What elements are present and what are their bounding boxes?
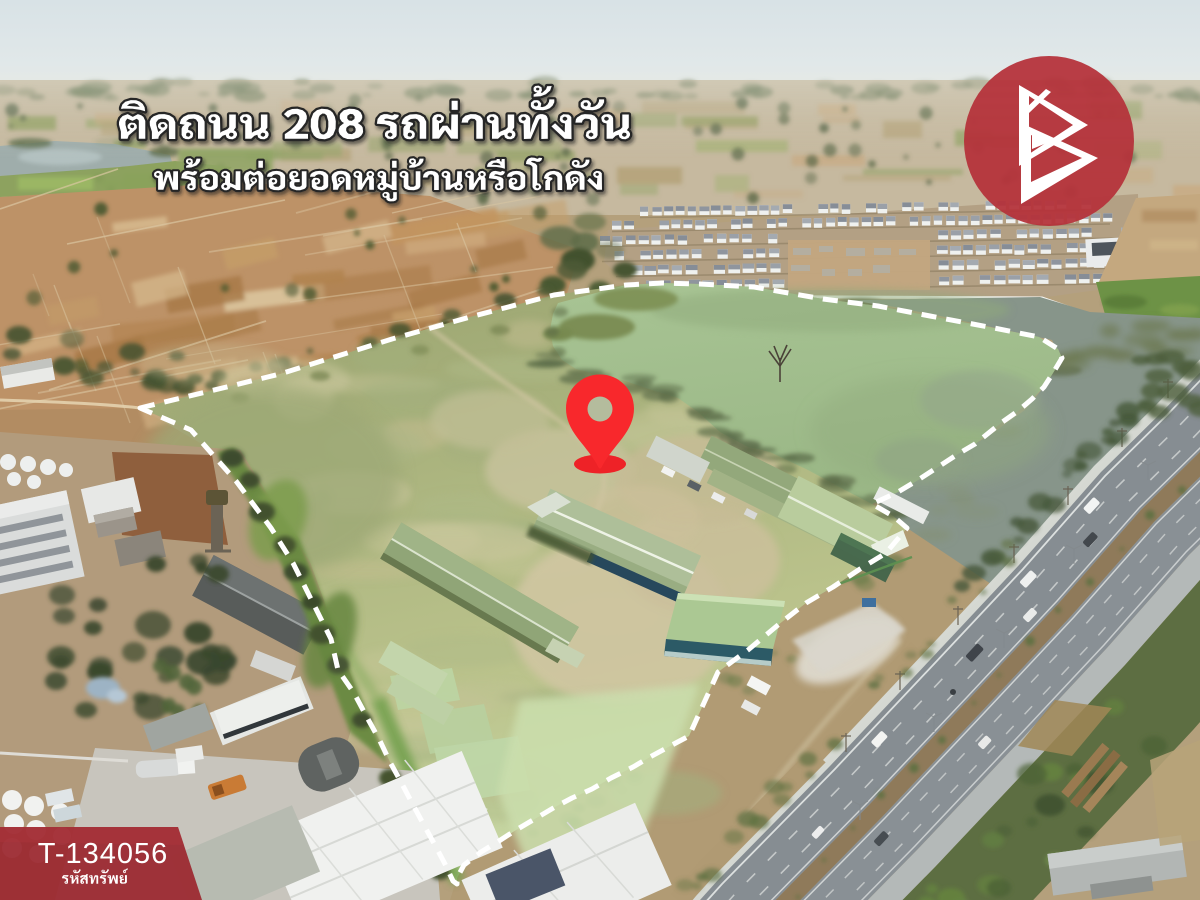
svg-text:T-134056: T-134056 (38, 838, 169, 870)
